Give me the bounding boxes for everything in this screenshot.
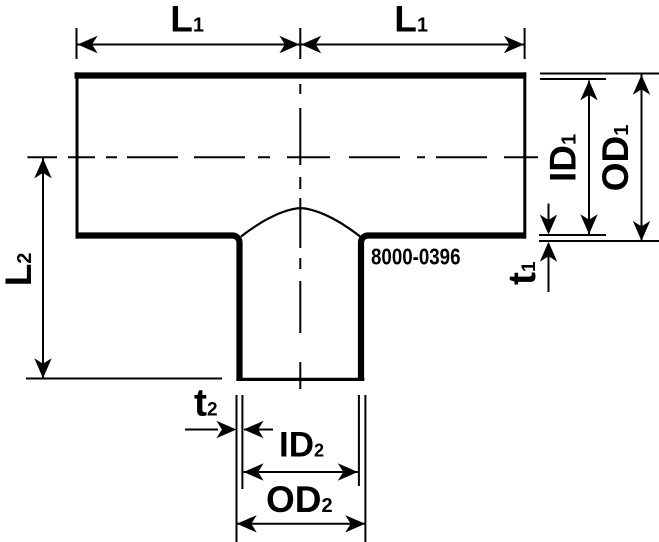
svg-text:8000-0396: 8000-0396 bbox=[371, 244, 461, 270]
